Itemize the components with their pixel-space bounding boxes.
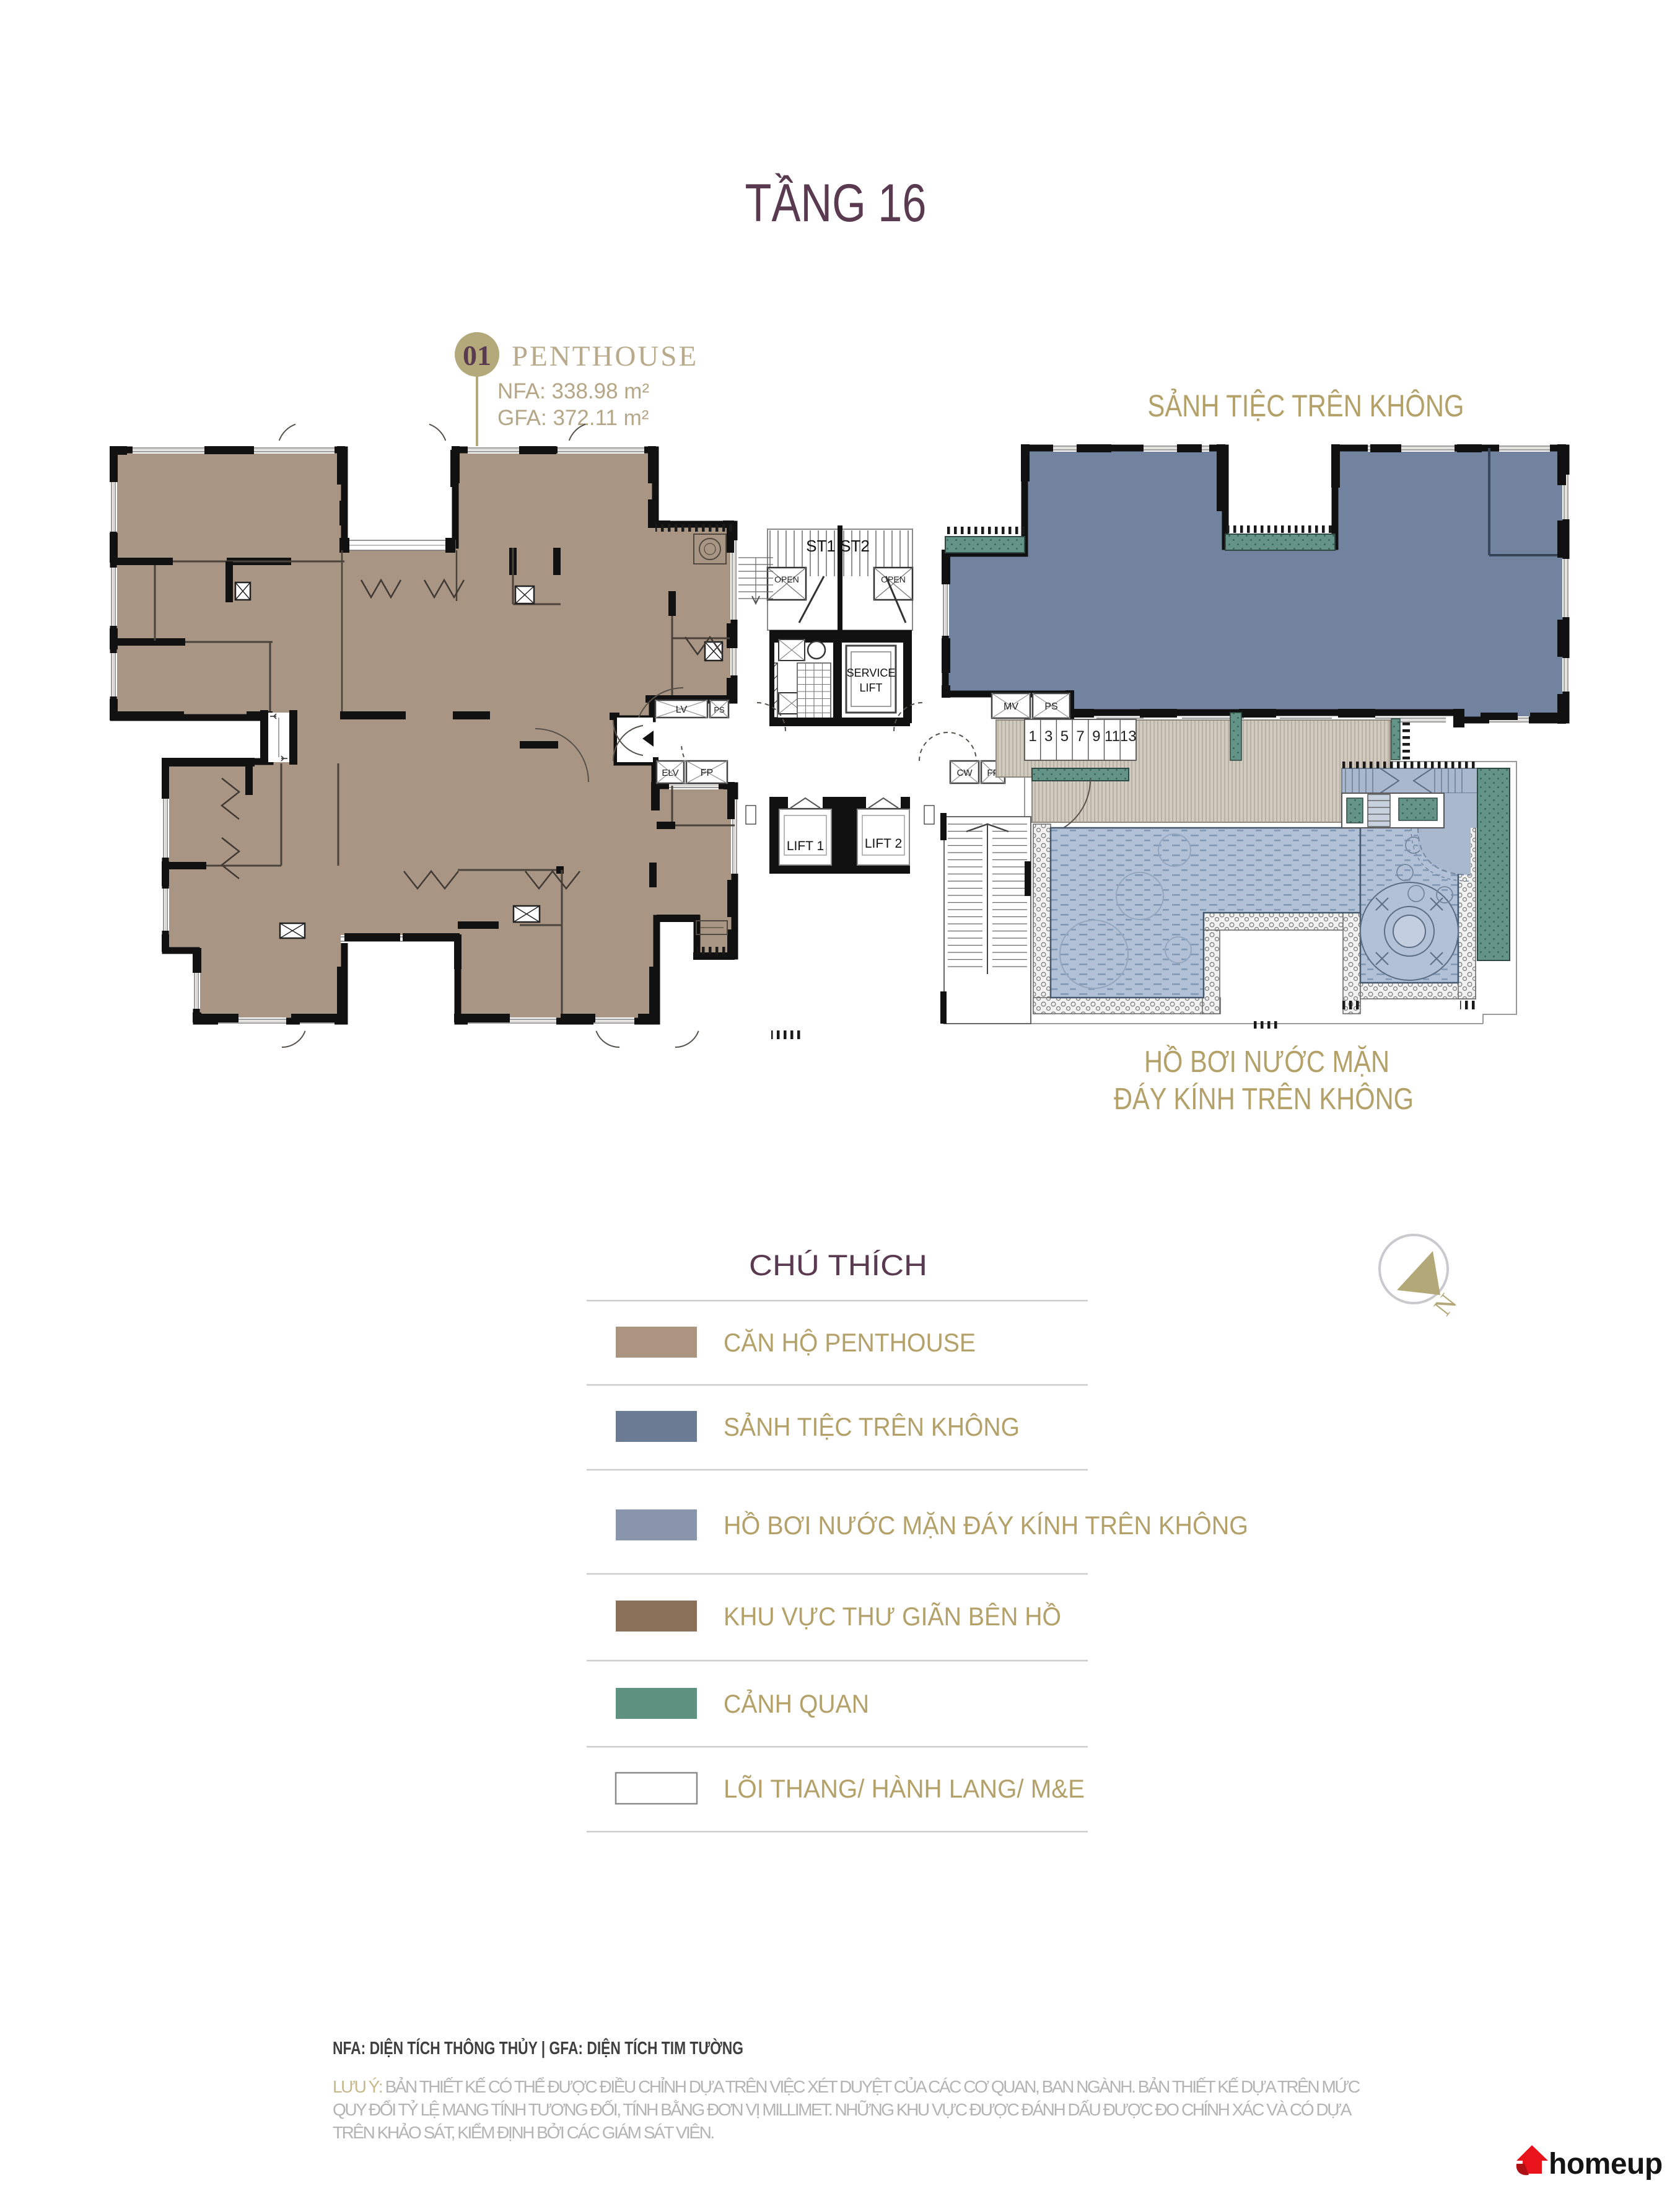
svg-text:9: 9 xyxy=(1092,728,1100,745)
svg-text:ĐÁY KÍNH TRÊN KHÔNG: ĐÁY KÍNH TRÊN KHÔNG xyxy=(1114,1083,1414,1116)
svg-text:TẦNG 16: TẦNG 16 xyxy=(745,173,927,233)
svg-text:11: 11 xyxy=(1105,728,1120,745)
svg-text:ST1: ST1 xyxy=(806,537,836,555)
svg-text:MV: MV xyxy=(1004,701,1018,712)
svg-text:LƯU Ý: BẢN THIẾT KẾ CÓ THỂ ĐƯỢ: LƯU Ý: BẢN THIẾT KẾ CÓ THỂ ĐƯỢC ĐIỀU CHỈ… xyxy=(333,2076,1360,2096)
svg-text:ST2: ST2 xyxy=(840,537,870,555)
svg-text:CĂN HỘ PENTHOUSE: CĂN HỘ PENTHOUSE xyxy=(724,1328,976,1357)
svg-text:13: 13 xyxy=(1120,728,1137,745)
svg-text:HỒ BƠI NƯỚC MẶN ĐÁY KÍNH TRÊN: HỒ BƠI NƯỚC MẶN ĐÁY KÍNH TRÊN KHÔNG xyxy=(724,1510,1248,1540)
svg-text:ELV: ELV xyxy=(662,768,678,778)
svg-text:GFA: 372.11 m²: GFA: 372.11 m² xyxy=(497,406,649,430)
svg-text:QUY ĐỔI TỶ LỆ MANG TÍNH TƯƠNG: QUY ĐỔI TỶ LỆ MANG TÍNH TƯƠNG ĐỐI, TÍNH … xyxy=(333,2099,1352,2119)
svg-text:1: 1 xyxy=(1028,728,1036,745)
svg-text:CW: CW xyxy=(957,768,973,778)
svg-text:homeup: homeup xyxy=(1549,2148,1663,2181)
svg-text:HỒ BƠI NƯỚC MẶN: HỒ BƠI NƯỚC MẶN xyxy=(1144,1045,1389,1079)
svg-text:LIFT 2: LIFT 2 xyxy=(865,837,902,851)
svg-text:TRÊN KHẢO SÁT, KIỂM ĐỊNH BỞI C: TRÊN KHẢO SÁT, KIỂM ĐỊNH BỞI CÁC GIÁM SÁ… xyxy=(333,2122,714,2142)
svg-text:5: 5 xyxy=(1061,728,1069,745)
svg-text:LIFT: LIFT xyxy=(859,682,882,694)
svg-text:7: 7 xyxy=(1076,728,1084,745)
svg-text:PS: PS xyxy=(714,705,725,714)
svg-text:OPEN: OPEN xyxy=(881,574,906,584)
svg-text:FP: FP xyxy=(701,768,713,778)
svg-text:LV: LV xyxy=(676,705,688,715)
svg-text:01: 01 xyxy=(463,340,491,371)
svg-text:NFA: 338.98 m²: NFA: 338.98 m² xyxy=(497,379,649,403)
svg-text:LÕI THANG/ HÀNH LANG/ M&E: LÕI THANG/ HÀNH LANG/ M&E xyxy=(724,1774,1085,1803)
svg-text:CHÚ THÍCH: CHÚ THÍCH xyxy=(749,1249,927,1281)
svg-text:CẢNH QUAN: CẢNH QUAN xyxy=(724,1689,869,1718)
svg-text:SẢNH TIỆC TRÊN KHÔNG: SẢNH TIỆC TRÊN KHÔNG xyxy=(1148,389,1464,423)
svg-text:SERVICE: SERVICE xyxy=(847,667,896,679)
svg-text:SẢNH TIỆC TRÊN KHÔNG: SẢNH TIỆC TRÊN KHÔNG xyxy=(724,1412,1020,1441)
svg-text:NFA: DIỆN TÍCH THÔNG THỦY | GF: NFA: DIỆN TÍCH THÔNG THỦY | GFA: DIỆN TÍ… xyxy=(333,2037,743,2058)
svg-text:3: 3 xyxy=(1044,728,1052,745)
svg-text:KHU VỰC THƯ GIÃN BÊN HỒ: KHU VỰC THƯ GIÃN BÊN HỒ xyxy=(724,1601,1061,1631)
svg-text:LIFT 1: LIFT 1 xyxy=(787,839,824,853)
svg-text:PS: PS xyxy=(1044,701,1057,712)
svg-text:OPEN: OPEN xyxy=(774,574,799,584)
svg-text:PENTHOUSE: PENTHOUSE xyxy=(512,340,698,372)
